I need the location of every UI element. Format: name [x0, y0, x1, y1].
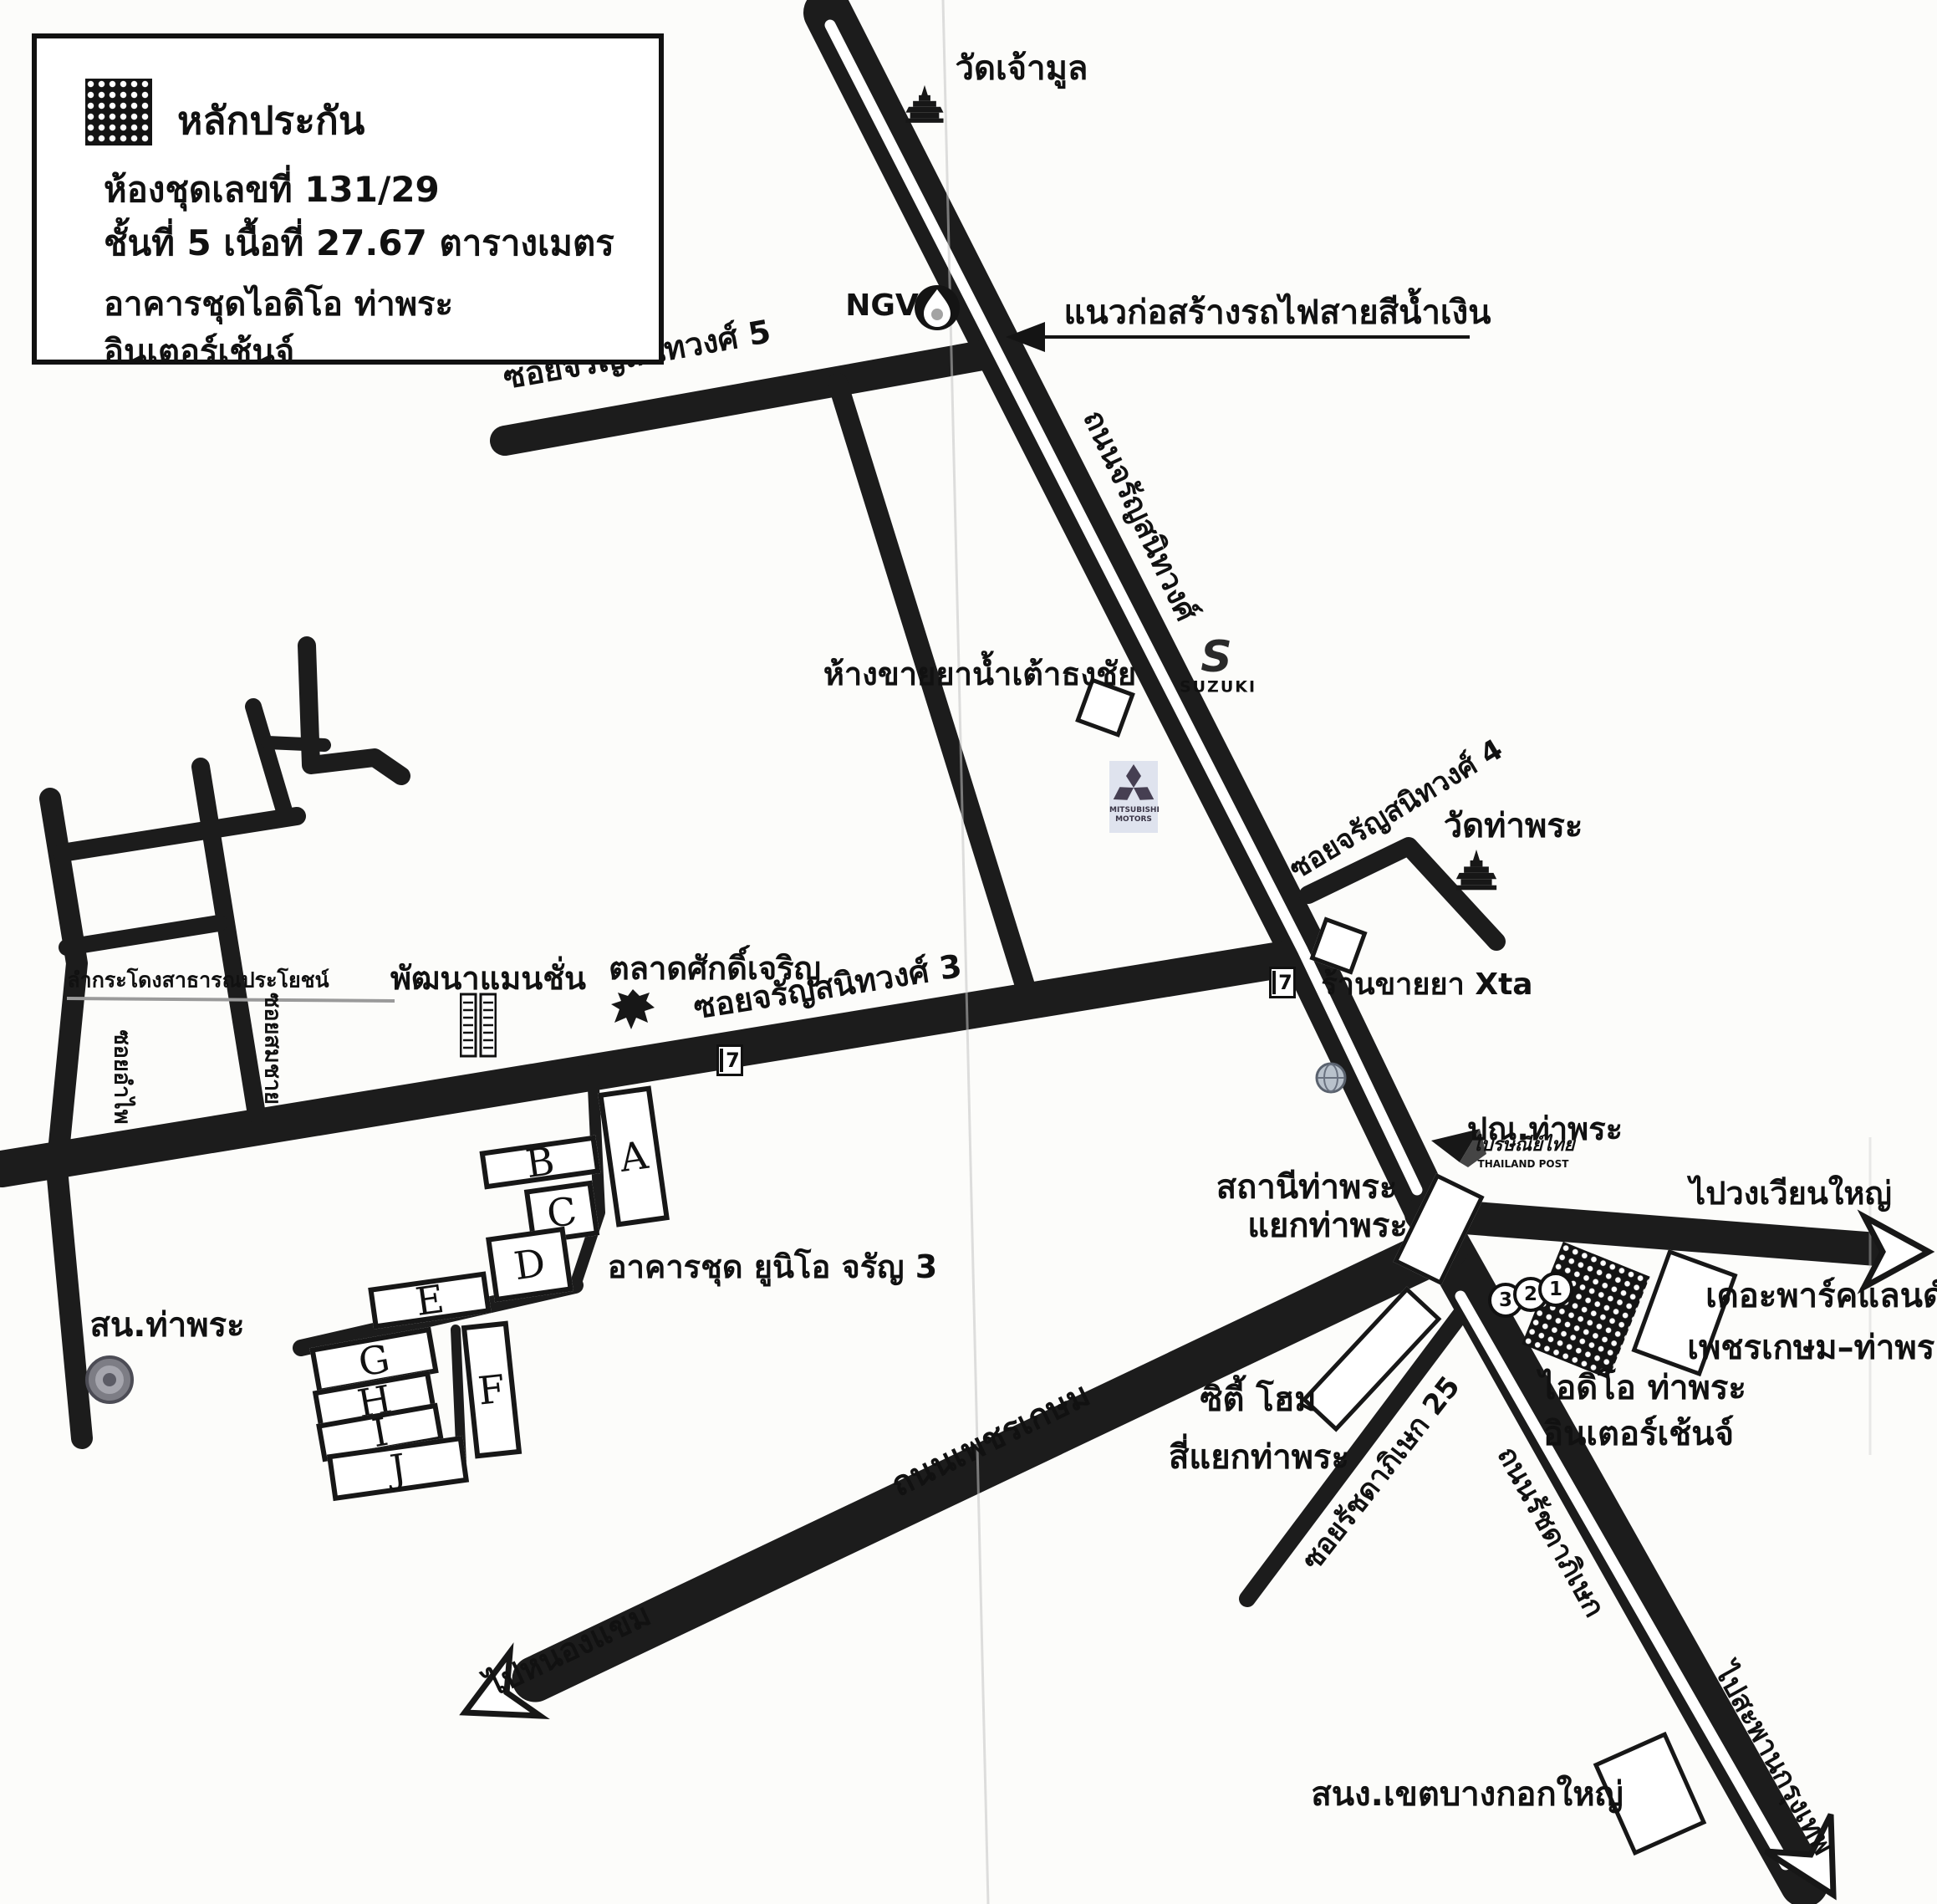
label-parkland-2: เพชรเกษม–ท่าพระ — [1687, 1331, 1937, 1365]
building-letter: E — [413, 1276, 447, 1325]
label-canal: ลำกระโดงสาธารณประโยชน์ — [67, 970, 329, 991]
label-unio-condo: อาคารชุด ยูนิโอ จรัญ 3 — [608, 1251, 937, 1283]
building-letter: B — [523, 1138, 558, 1187]
road-wongwian-yai — [1421, 1214, 1877, 1249]
collateral-hatch-icon — [85, 79, 152, 145]
label-si-yaek-tha-phra: สี่แยกท่าพระ — [1169, 1441, 1349, 1474]
label-soi-somchai: ซอยสมชาย — [262, 993, 284, 1105]
route-number-label: 3 — [1499, 1289, 1512, 1311]
seven-eleven-icon: 7 — [716, 1044, 743, 1076]
globe-shop-icon — [1315, 1062, 1347, 1094]
pattana-mansion-icon — [460, 993, 497, 1058]
unio-building-D: D — [486, 1227, 573, 1302]
label-tha-phra-junction: แยกท่าพระ — [1247, 1209, 1408, 1243]
label-ideo-2: อินเตอร์เช้นจ์ — [1543, 1417, 1734, 1451]
legend-building-2: อินเตอร์เช้นจ์ — [104, 324, 294, 378]
route-number-label: 1 — [1549, 1279, 1562, 1300]
sak-charoen-market-icon — [611, 989, 655, 1029]
canal-line — [67, 998, 395, 1001]
legend-unit: ห้องชุดเลขที่ 131/29 — [104, 162, 440, 217]
label-ideo-1: ไอดิโอ ท่าพระ — [1539, 1371, 1746, 1405]
road-lane-5 — [268, 743, 324, 745]
label-wat-tha-phra: วัดท่าพระ — [1444, 809, 1583, 843]
ngv-station-icon — [913, 283, 961, 332]
label-thailand-post-en: THAILAND POST — [1478, 1159, 1569, 1169]
label-mrt-note: แนวก่อสร้างรถไฟสายสีน้ำเงิน — [1064, 296, 1491, 329]
label-tha-phra-station: สถานีท่าพระ — [1216, 1171, 1398, 1204]
road-unio-access — [575, 1070, 599, 1285]
seven-eleven-icon: 7 — [1269, 967, 1296, 998]
road-lane-2 — [67, 923, 219, 947]
road-lane-4 — [253, 707, 285, 814]
building-letter: A — [617, 1132, 650, 1181]
label-police-station: สน.ท่าพระ — [89, 1309, 244, 1342]
label-parkland-1: เดอะพาร์คแลนด์ — [1705, 1279, 1937, 1313]
label-ngv: NGV — [845, 291, 919, 321]
mitsubishi-label: MITSUBISHI — [1109, 806, 1160, 814]
wat-chao-mun-temple-icon — [903, 84, 946, 127]
label-suzuki: SUZUKI — [1180, 680, 1257, 696]
legend-floor-area: ชั้นที่ 5 เนื้อที่ 27.67 ตารางเมตร — [104, 216, 614, 271]
seven-label: 7 — [1272, 971, 1292, 994]
road-lane-1 — [62, 816, 297, 853]
label-wongwian-yai: ไปวงเวียนใหญ่ — [1690, 1177, 1892, 1209]
label-pattana-mansion: พัฒนาแมนชั่น — [390, 962, 586, 994]
road-lane-3 — [307, 646, 401, 776]
route-number-1: 1 — [1538, 1272, 1573, 1307]
building-letter: F — [476, 1365, 507, 1413]
seven-label: 7 — [720, 1049, 740, 1072]
building-letter: J — [387, 1445, 409, 1492]
route-number-label: 2 — [1524, 1284, 1537, 1305]
label-drugstore-namtao: ห้างขายยาน้ำเต้าธงชัย — [823, 658, 1136, 690]
building-letter: D — [511, 1240, 548, 1289]
label-district-office: สนง.เขตบางกอกใหญ่ — [1311, 1778, 1623, 1811]
label-city-home: ซิตี้ โฮม — [1200, 1383, 1316, 1417]
wat-tha-phra-temple-icon — [1453, 850, 1500, 893]
mitsubishi-motors-icon: MITSUBISHI MOTORS — [1109, 761, 1158, 833]
police-badge-icon — [85, 1355, 134, 1404]
suzuki-s-icon: S — [1200, 636, 1231, 679]
mitsubishi-label2: MOTORS — [1115, 815, 1152, 824]
legend-building-1: อาคารชุดไอดิโอ ท่าพระ — [104, 277, 453, 330]
tha-phra-location-map: A B C D E F G H I J หลักประกัน ห้องชุดเล… — [0, 0, 1937, 1904]
legend-title: หลักประกัน — [177, 90, 364, 151]
label-thailand-post-th: ไปรษณีย์ไทย — [1471, 1136, 1574, 1155]
label-drugstore-xta: ร้านขายยา Xta — [1321, 970, 1532, 1000]
road-soi-amphai — [50, 799, 82, 1438]
label-wat-chao-mun: วัดเจ้ามูล — [956, 52, 1088, 85]
label-soi-amphai: ซอยอำไพ — [111, 1029, 134, 1124]
legend-box: หลักประกัน ห้องชุดเลขที่ 131/29 ชั้นที่ … — [32, 33, 664, 365]
